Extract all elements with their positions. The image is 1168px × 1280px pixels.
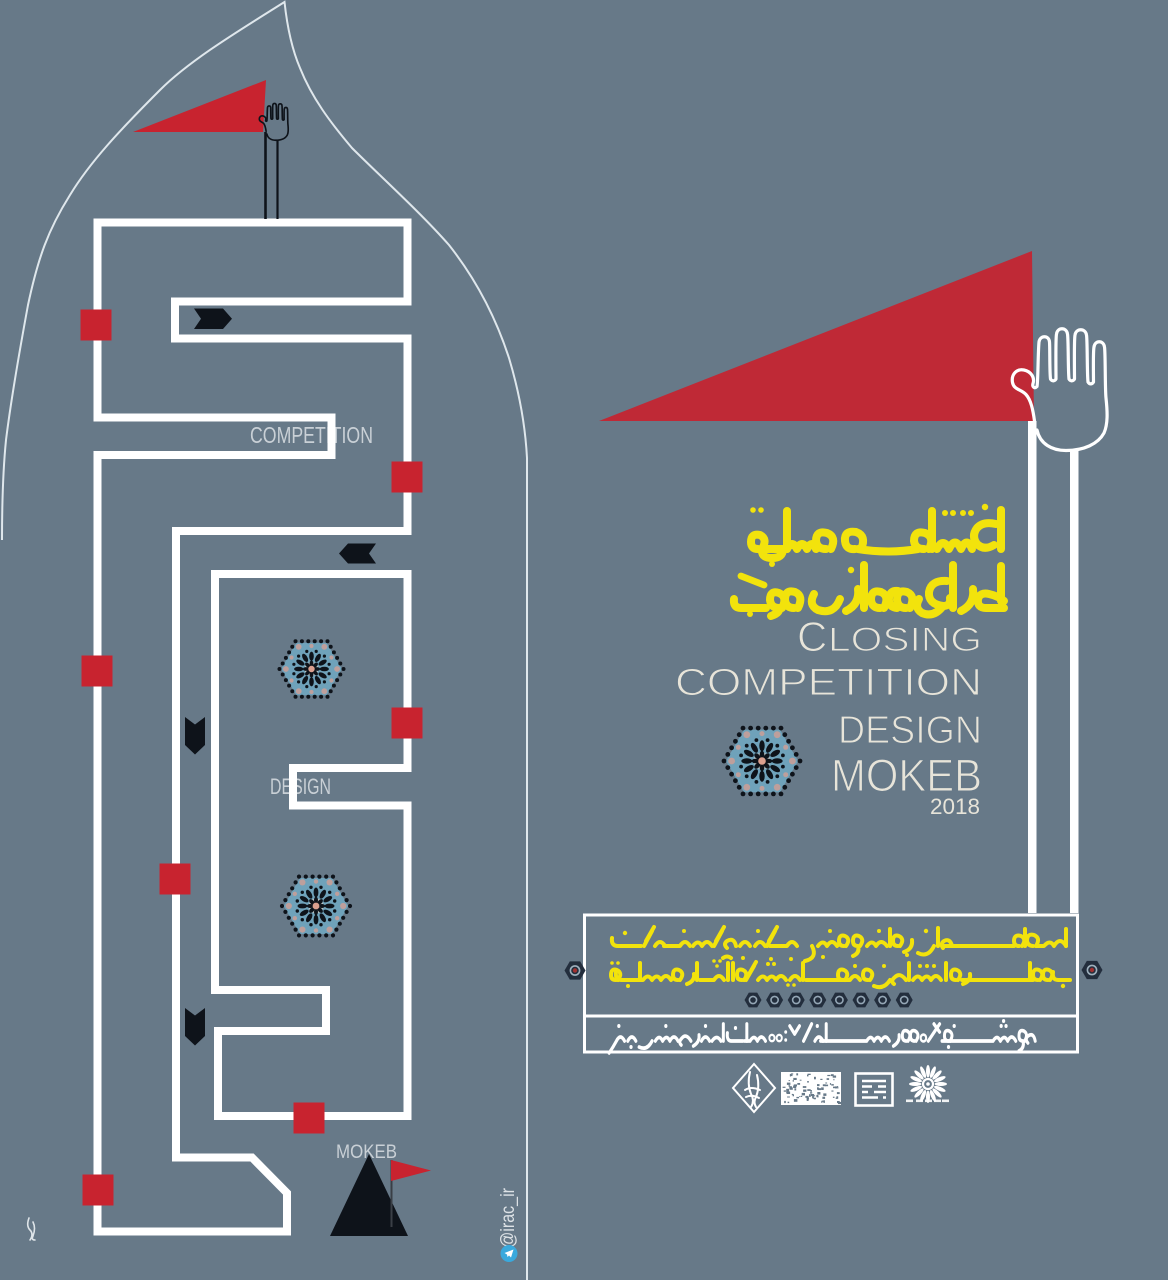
svg-text:DESIGN: DESIGN [838, 709, 982, 752]
svg-text:@irac_ir: @irac_ir [498, 1187, 519, 1248]
svg-text:C: C [797, 613, 827, 660]
svg-text:2018: 2018 [930, 794, 980, 819]
svg-text:COMPETITION: COMPETITION [675, 662, 982, 704]
svg-text:COMPETITION: COMPETITION [250, 422, 373, 448]
svg-text:DESIGN: DESIGN [270, 774, 331, 799]
svg-text:LOSING: LOSING [828, 621, 982, 659]
